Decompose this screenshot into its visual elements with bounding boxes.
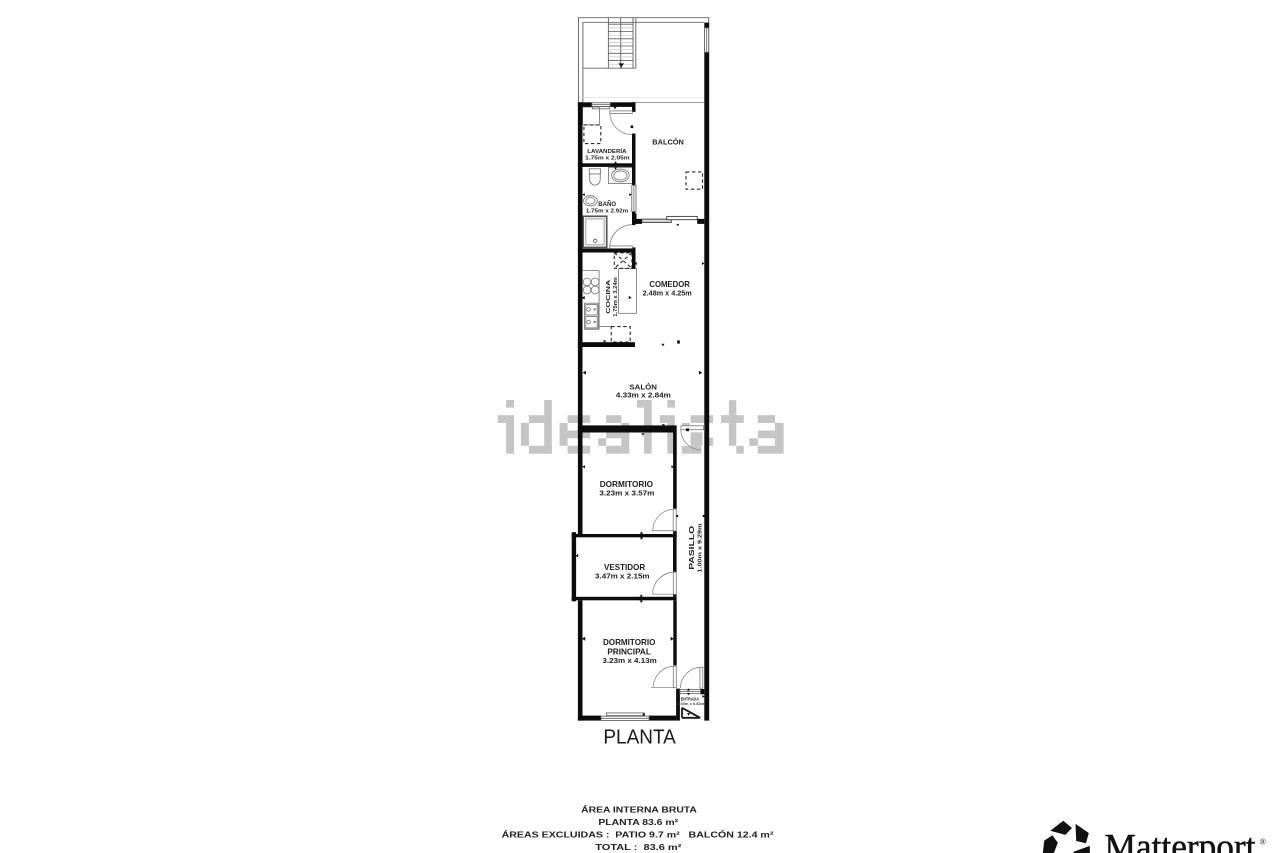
svg-text:3.47m x 2.15m: 3.47m x 2.15m xyxy=(595,574,650,581)
svg-text:VESTIDOR: VESTIDOR xyxy=(604,562,645,572)
svg-text:1.00m x 9.29m: 1.00m x 9.29m xyxy=(697,524,703,573)
svg-text:1.00m x 0.82m: 1.00m x 0.82m xyxy=(677,702,704,706)
svg-text:1.75m x 2.05m: 1.75m x 2.05m xyxy=(585,156,629,162)
svg-text:PLANTA 83.6 m²: PLANTA 83.6 m² xyxy=(598,818,678,827)
svg-text:2.48m x 4.25m: 2.48m x 4.25m xyxy=(643,291,692,298)
svg-text:COCINA: COCINA xyxy=(606,279,612,314)
svg-text:BALCÓN: BALCÓN xyxy=(652,138,684,147)
svg-text:BAÑO: BAÑO xyxy=(598,201,616,208)
svg-text:PRINCIPAL: PRINCIPAL xyxy=(607,647,651,657)
svg-text:TOTAL : 83.6 m²: TOTAL : 83.6 m² xyxy=(595,843,682,852)
svg-text:LAVANDERÍA: LAVANDERÍA xyxy=(587,147,626,155)
svg-text:3.23m x 4.13m: 3.23m x 4.13m xyxy=(602,658,656,665)
svg-text:®: ® xyxy=(1260,836,1267,846)
svg-text:3.23m x 3.57m: 3.23m x 3.57m xyxy=(599,490,654,497)
svg-text:DORMITORIO: DORMITORIO xyxy=(600,479,654,489)
svg-text:ÁREA INTERNA BRUTA: ÁREA INTERNA BRUTA xyxy=(581,806,697,815)
svg-text:ENTRADA: ENTRADA xyxy=(681,696,700,701)
svg-text:PASILLO: PASILLO xyxy=(689,525,696,570)
svg-text:1.75m x 2.92m: 1.75m x 2.92m xyxy=(586,209,628,215)
svg-text:4.33m x 2.84m: 4.33m x 2.84m xyxy=(616,393,671,400)
svg-text:ÁREAS EXCLUIDAS : PATIO 9.7 m: ÁREAS EXCLUIDAS : PATIO 9.7 m² BALCÓN 12… xyxy=(502,831,774,840)
svg-text:1.75m x 3.24m: 1.75m x 3.24m xyxy=(613,277,619,317)
svg-text:SALÓN: SALÓN xyxy=(629,383,657,392)
svg-text:Matterport: Matterport xyxy=(1105,827,1256,853)
svg-text:COMEDOR: COMEDOR xyxy=(649,280,690,289)
svg-text:PLANTA: PLANTA xyxy=(603,727,676,749)
